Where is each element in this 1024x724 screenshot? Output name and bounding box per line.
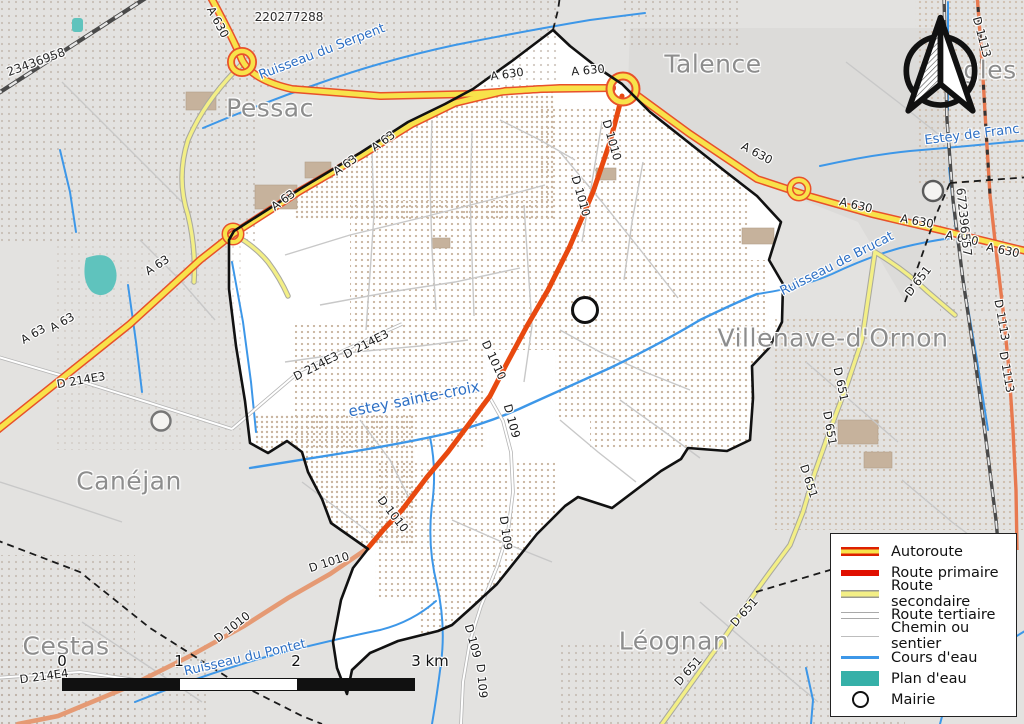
legend-items: AutorouteRoute primaireRoute secondaireR… xyxy=(840,541,1007,711)
scalebar-tick: 2 xyxy=(291,652,301,670)
plan-symbol-icon xyxy=(841,671,879,686)
scalebar-tick: 0 xyxy=(57,652,67,670)
cours-symbol-icon xyxy=(841,656,879,659)
mairie-icon xyxy=(152,412,171,431)
legend-label: Route secondaire xyxy=(891,578,1007,610)
legend-label: Cours d'eau xyxy=(891,650,978,666)
autoroute-symbol-icon xyxy=(841,547,879,556)
legend-label: Chemin ou sentier xyxy=(891,620,1007,652)
legend-item-secondaire: Route secondaire xyxy=(840,583,1007,604)
north-arrow-icon xyxy=(893,12,988,125)
scalebar-tick: 3 km xyxy=(411,652,449,670)
legend-item-plan: Plan d'eau xyxy=(840,668,1007,689)
mairie-icon xyxy=(923,181,943,201)
legend-item-mairie: Mairie xyxy=(840,689,1007,710)
scalebar-tick: 1 xyxy=(174,652,184,670)
legend-item-autoroute: Autoroute xyxy=(840,541,1007,562)
tertiaire-symbol-icon xyxy=(841,612,879,619)
legend-item-chemin: Chemin ou sentier xyxy=(840,626,1007,647)
legend-label: Mairie xyxy=(891,692,935,708)
chemin-symbol-icon xyxy=(841,636,879,638)
legend-label: Plan d'eau xyxy=(891,671,967,687)
scalebar: 0123 km xyxy=(54,652,474,698)
legend: AutorouteRoute primaireRoute secondaireR… xyxy=(830,533,1017,717)
map-stage[interactable]: PessacTalenceVillenave-d'OrnonCanéjanCes… xyxy=(0,0,1024,724)
mairie-icon xyxy=(573,298,598,323)
secondaire-symbol-icon xyxy=(841,590,879,598)
scalebar-bar xyxy=(62,678,415,691)
mairie-symbol-icon xyxy=(852,691,869,708)
primaire-symbol-icon xyxy=(841,570,879,576)
legend-label: Autoroute xyxy=(891,544,963,560)
